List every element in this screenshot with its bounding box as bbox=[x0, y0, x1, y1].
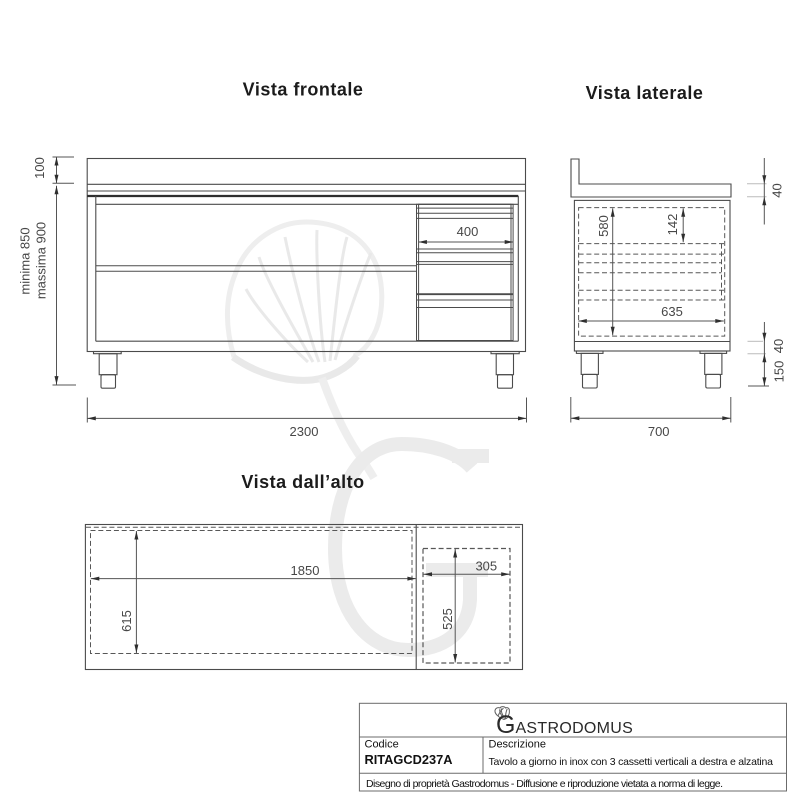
svg-text:305: 305 bbox=[475, 559, 497, 574]
svg-text:Vista frontale: Vista frontale bbox=[243, 80, 364, 100]
svg-text:Codice: Codice bbox=[365, 739, 399, 751]
svg-text:150: 150 bbox=[772, 361, 787, 383]
svg-text:142: 142 bbox=[665, 214, 680, 236]
svg-text:Vista dall’alto: Vista dall’alto bbox=[241, 472, 364, 492]
svg-text:525: 525 bbox=[440, 608, 455, 630]
svg-text:GASTRODOMUS: GASTRODOMUS bbox=[496, 711, 633, 739]
svg-text:400: 400 bbox=[457, 224, 479, 239]
svg-text:40: 40 bbox=[771, 339, 786, 353]
svg-text:40: 40 bbox=[770, 183, 785, 197]
svg-text:Tavolo a giorno in inox con 3: Tavolo a giorno in inox con 3 cassetti v… bbox=[489, 756, 774, 768]
svg-text:580: 580 bbox=[596, 215, 611, 237]
svg-text:2300: 2300 bbox=[290, 424, 319, 439]
svg-text:100: 100 bbox=[32, 157, 47, 179]
svg-text:615: 615 bbox=[119, 610, 134, 632]
svg-text:700: 700 bbox=[648, 424, 670, 439]
svg-text:Disegno di proprietà Gastrodom: Disegno di proprietà Gastrodomus - Diffu… bbox=[366, 778, 723, 790]
svg-text:635: 635 bbox=[661, 304, 683, 319]
svg-text:RITAGCD237A: RITAGCD237A bbox=[365, 752, 453, 767]
svg-text:massima 900: massima 900 bbox=[34, 222, 49, 299]
svg-text:minima 850: minima 850 bbox=[18, 227, 33, 294]
svg-text:1850: 1850 bbox=[291, 563, 320, 578]
svg-text:Vista laterale: Vista laterale bbox=[586, 83, 704, 103]
svg-text:Descrizione: Descrizione bbox=[489, 739, 546, 751]
